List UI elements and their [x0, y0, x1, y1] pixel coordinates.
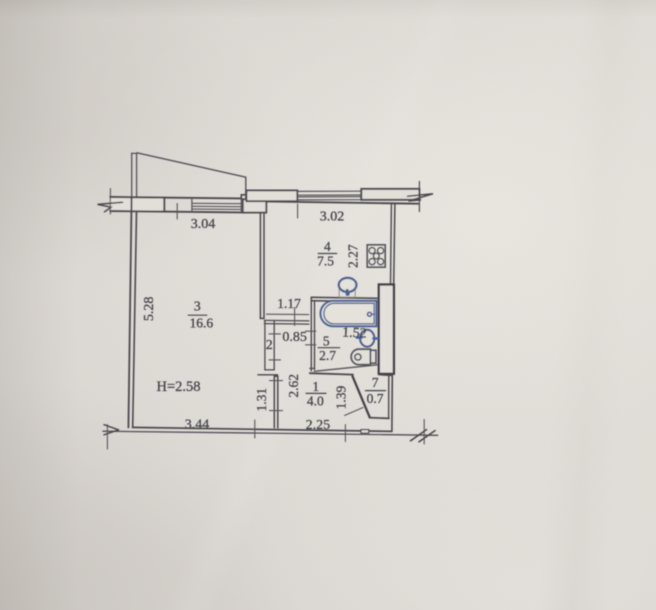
svg-text:2.27: 2.27 [346, 244, 361, 268]
svg-text:5.28: 5.28 [142, 297, 157, 322]
svg-text:5: 5 [323, 334, 330, 349]
svg-text:1.31: 1.31 [254, 388, 269, 412]
svg-text:3.04: 3.04 [191, 217, 216, 232]
svg-text:4.0: 4.0 [307, 393, 324, 408]
svg-text:3.02: 3.02 [320, 210, 345, 225]
svg-text:1.39: 1.39 [334, 386, 349, 410]
svg-text:1.52: 1.52 [342, 325, 367, 341]
svg-text:1.17: 1.17 [277, 296, 301, 311]
svg-text:1: 1 [312, 379, 319, 394]
svg-text:3: 3 [194, 300, 201, 315]
svg-text:2.62: 2.62 [286, 374, 301, 398]
svg-text:7: 7 [372, 375, 379, 390]
svg-text:2.7: 2.7 [319, 348, 336, 363]
svg-text:4: 4 [324, 239, 331, 254]
svg-text:0.85: 0.85 [282, 330, 307, 345]
svg-text:2: 2 [266, 338, 273, 353]
svg-text:16.6: 16.6 [189, 316, 213, 331]
svg-text:2.25: 2.25 [306, 418, 331, 433]
svg-text:7.5: 7.5 [317, 254, 334, 269]
svg-text:H=2.58: H=2.58 [156, 379, 200, 395]
svg-text:3.44: 3.44 [185, 418, 210, 433]
svg-text:0.7: 0.7 [367, 391, 384, 406]
